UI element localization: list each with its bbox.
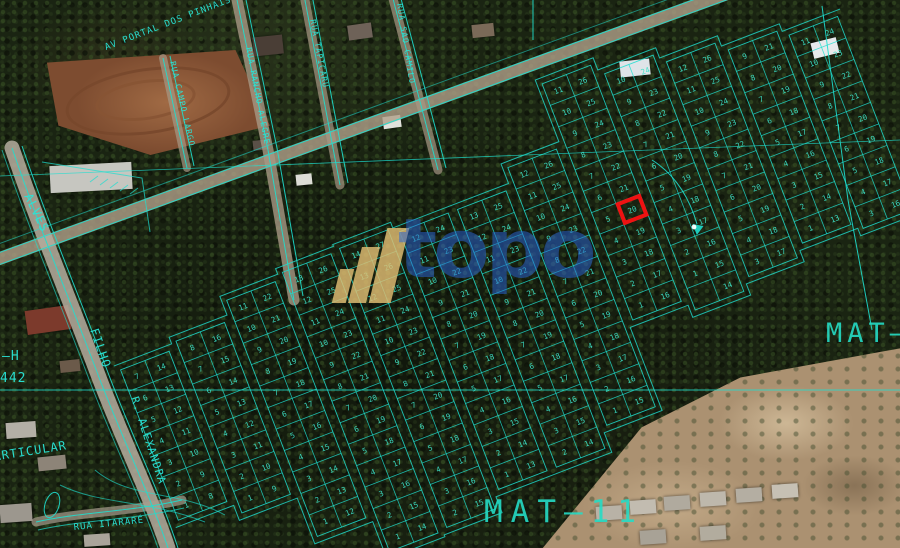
lot-number: 15: [714, 258, 726, 270]
lot-number: 16: [567, 394, 579, 406]
lot-number: 24: [399, 304, 411, 316]
lot-number: 17: [558, 373, 570, 385]
lot-number: 10: [246, 322, 258, 334]
lot-number: 22: [451, 266, 463, 278]
lot-number: 5: [737, 214, 744, 224]
lot-number: 18: [788, 106, 800, 118]
lot-number: 9: [328, 360, 335, 370]
lot-number: 16: [625, 374, 637, 386]
lot-number: 2: [386, 510, 393, 520]
lot-number: 2: [799, 202, 806, 212]
lot-number: 4: [222, 428, 230, 438]
lot-number: 23: [726, 118, 738, 130]
lot-number: 4: [586, 341, 594, 351]
lot-number: 4: [782, 159, 790, 169]
lot-number: 5: [213, 407, 220, 417]
lot-number: 18: [767, 225, 779, 237]
lot-number: 15: [509, 416, 521, 428]
lot-number: 20: [592, 288, 604, 300]
lot-number: 19: [865, 134, 877, 146]
lot-number: 24: [593, 118, 605, 130]
lot-number: 11: [527, 190, 539, 202]
lot-number: 3: [595, 362, 602, 372]
lot-number: 6: [766, 116, 774, 126]
lot-number: 22: [610, 161, 622, 173]
lot-number: 20: [278, 334, 290, 346]
lot-number: 25: [551, 181, 563, 193]
lot-number: 5: [659, 183, 666, 193]
lot-number: 16: [311, 420, 323, 432]
lot-number: 18: [449, 433, 461, 445]
lot-number: 22: [262, 292, 274, 304]
lot-number: 13: [829, 213, 841, 225]
lot-number: 10: [535, 211, 547, 223]
lot-number: 26: [383, 261, 395, 273]
lot-number: 4: [158, 436, 166, 446]
lot-number: 9: [503, 297, 510, 307]
lot-number: 9: [626, 97, 633, 107]
cad-overlay: 7146135124113102918816715614513412311210…: [0, 0, 900, 548]
lot-number: 9: [199, 469, 206, 479]
lot-number: 9: [741, 51, 748, 61]
lot-number: 25: [326, 285, 338, 297]
lot-number: 17: [882, 177, 894, 189]
lot-number: 16: [890, 198, 900, 210]
lot-number: 21: [743, 161, 755, 173]
lot-number: 19: [542, 330, 554, 342]
lot-number: 9: [704, 128, 711, 138]
lot-number: 1: [246, 493, 253, 503]
lot-number: 23: [567, 224, 579, 236]
lot-number: 17: [617, 352, 629, 364]
lot-number: 11: [685, 84, 697, 96]
lot-number: 11: [252, 440, 264, 452]
lot-number: 24: [434, 223, 446, 235]
lot-number: 23: [509, 244, 521, 256]
lot-number: 22: [576, 245, 588, 257]
lot-number: 12: [476, 232, 488, 244]
lot-number: 1: [322, 517, 329, 527]
lot-number: 24: [639, 65, 651, 77]
lot-number: 20: [432, 390, 444, 402]
lot-number: 6: [596, 193, 604, 203]
lot-number: 4: [544, 404, 552, 414]
lot-number: 3: [230, 450, 237, 460]
lot-number: 13: [164, 383, 176, 395]
lot-number: 10: [427, 275, 439, 287]
lot-number: 9: [571, 128, 578, 138]
lot-number: 6: [353, 424, 361, 434]
lot-number: 2: [175, 479, 182, 489]
lot-number: 17: [796, 127, 808, 139]
lot-number: 6: [729, 192, 737, 202]
lot-number: 3: [753, 257, 760, 267]
lot-number: 11: [180, 426, 192, 438]
lot-number: 3: [790, 180, 797, 190]
lot-number: 15: [633, 395, 645, 407]
lot-number: 10: [260, 461, 272, 473]
lot-number: 10: [808, 57, 820, 69]
lot-number: 18: [609, 331, 621, 343]
lot-number: 10: [383, 335, 395, 347]
lot-number: 21: [424, 369, 436, 381]
lot-number: 22: [350, 350, 362, 362]
lot-number: 7: [520, 340, 527, 350]
lot-number: 3: [305, 474, 312, 484]
lot-number: 3: [166, 457, 173, 467]
lot-number: 17: [303, 399, 315, 411]
lot-number: 21: [459, 288, 471, 300]
lot-number: 26: [317, 264, 329, 276]
lot-number: 16: [211, 332, 223, 344]
lot-number: 9: [818, 80, 825, 90]
lot-number: 4: [297, 452, 305, 462]
lot-number: 8: [207, 491, 215, 501]
lot-number: 6: [843, 144, 851, 154]
lot-number: 5: [851, 165, 858, 175]
lot-number: 21: [525, 287, 537, 299]
lot-number: 1: [637, 300, 644, 310]
lot-number: 19: [681, 173, 693, 185]
lot-number: 14: [517, 438, 529, 450]
lot-number: 20: [672, 151, 684, 163]
lot-number: 25: [710, 75, 722, 87]
lot-number: 18: [484, 352, 496, 364]
lot-number: 1: [503, 469, 510, 479]
lot-number: 7: [757, 94, 764, 104]
lot-number: 24: [501, 222, 513, 234]
lot-number: 14: [327, 463, 339, 475]
lot-number: 14: [722, 280, 734, 292]
lot-number: 5: [578, 320, 585, 330]
lot-number: 4: [745, 235, 753, 245]
lot-number: 27: [374, 240, 386, 252]
lot-number: 5: [774, 137, 781, 147]
lot-number: 6: [418, 421, 426, 431]
lot-number: 3: [868, 208, 875, 218]
mat-11-label: MAT—11: [484, 494, 644, 530]
lot-number: 20: [367, 392, 379, 404]
lot-number: 5: [150, 414, 157, 424]
lot-number: 23: [443, 245, 455, 257]
lot-number: 6: [650, 161, 658, 171]
lot-number: 5: [289, 431, 296, 441]
lot-number: 8: [402, 379, 410, 389]
lot-number: 17: [651, 269, 663, 281]
lot-number: 19: [635, 226, 647, 238]
lot-number: 12: [244, 418, 256, 430]
lot-number: 3: [486, 427, 493, 437]
lot-number: 19: [759, 204, 771, 216]
lot-number: 10: [615, 74, 627, 86]
lot-number: 16: [659, 290, 671, 302]
lot-number: 4: [859, 187, 867, 197]
lot-number: 18: [689, 194, 701, 206]
lot-number: 20: [467, 309, 479, 321]
lot-number: 17: [492, 373, 504, 385]
lot-number: 7: [454, 341, 461, 351]
lot-number: 17: [457, 454, 469, 466]
lot-number: 5: [361, 446, 368, 456]
lot-number: 7: [272, 388, 279, 398]
lot-number: 24: [718, 96, 730, 108]
lot-number: 9: [545, 234, 552, 244]
lot-number: 11: [418, 254, 430, 266]
lot-number: 26: [577, 75, 589, 87]
lot-number: 16: [400, 478, 412, 490]
lot-number: 7: [197, 364, 204, 374]
lot-number: 22: [517, 265, 529, 277]
lot-number: 23: [407, 326, 419, 338]
lot-number: 2: [238, 472, 245, 482]
lot-number: 17: [391, 457, 403, 469]
lot-number: 12: [172, 404, 184, 416]
lot-number: 12: [344, 506, 356, 518]
lot-number: 8: [712, 149, 720, 159]
lot-number: 10: [694, 105, 706, 117]
lot-number: 25: [585, 97, 597, 109]
lot-number: 14: [583, 437, 595, 449]
lot-number: 9: [271, 484, 278, 494]
lot-number: 21: [618, 183, 630, 195]
lot-number: 4: [612, 236, 620, 246]
lot-number: 21: [270, 313, 282, 325]
lot-number: 11: [485, 253, 497, 265]
lot-number: 2: [451, 508, 458, 518]
lot-number: 2: [561, 447, 568, 457]
lot-number: 14: [227, 375, 239, 387]
lot-number: 22: [656, 108, 668, 120]
street-label: ALVES: [21, 191, 52, 234]
lot-number: 13: [236, 397, 248, 409]
lot-number: 7: [720, 171, 727, 181]
lot-number: 16: [465, 476, 477, 488]
lot-number: 8: [580, 150, 588, 160]
lot-number: 1: [807, 223, 814, 233]
lot-number: 3: [675, 226, 682, 236]
lot-number: 13: [525, 459, 537, 471]
lot-number: 15: [319, 442, 331, 454]
lot-number: 20: [626, 204, 638, 216]
lot-number: 1: [394, 532, 401, 542]
lot-number: 12: [518, 168, 530, 180]
lot-number: 7: [835, 123, 842, 133]
lot-number: 16: [500, 395, 512, 407]
street-label: AV PORTAL DOS PINHAIS: [103, 0, 232, 53]
lot-number: 12: [301, 295, 313, 307]
lot-number: 13: [358, 271, 370, 283]
lot-number: 8: [554, 255, 562, 265]
lot-number: 5: [470, 384, 477, 394]
lot-number: 7: [410, 400, 417, 410]
lot-number: 10: [188, 447, 200, 459]
lot-number: 13: [293, 273, 305, 285]
lot-number: 21: [584, 266, 596, 278]
lot-number: 12: [367, 292, 379, 304]
lot-number: 11: [309, 316, 321, 328]
lot-number: 24: [559, 202, 571, 214]
lot-number: 21: [849, 91, 861, 103]
lot-number: 14: [416, 521, 428, 533]
lot-number: 13: [336, 485, 348, 497]
lot-number: 21: [358, 371, 370, 383]
lot-number: 7: [588, 171, 595, 181]
lot-number: 22: [416, 347, 428, 359]
lot-number: 14: [821, 191, 833, 203]
lot-number: 2: [314, 495, 321, 505]
lot-number: 12: [677, 63, 689, 75]
lot-number: 8: [264, 366, 272, 376]
lot-number: 4: [478, 405, 486, 415]
lot-number: 5: [426, 443, 433, 453]
lot-number: 11: [800, 36, 812, 48]
lot-number: 15: [408, 500, 420, 512]
lot-number: 9: [437, 298, 444, 308]
lot-number: 21: [664, 130, 676, 142]
lot-number: 18: [873, 155, 885, 167]
lot-number: 22: [734, 139, 746, 151]
lot-number: 5: [536, 383, 543, 393]
lot-number: 11: [553, 85, 565, 97]
street-label: —H: [2, 349, 20, 364]
lot-number: 2: [629, 279, 636, 289]
lot-number: 24: [824, 26, 836, 38]
lot-number: 6: [205, 385, 213, 395]
lot-number: 22: [840, 69, 852, 81]
street-label: PARTICULAR: [0, 438, 68, 465]
lot-number: 17: [697, 215, 709, 227]
lot-number: 7: [562, 277, 569, 287]
lot-number: 19: [476, 330, 488, 342]
lot-number: 8: [189, 342, 197, 352]
lot-number: 7: [133, 371, 140, 381]
lot-number: 12: [410, 232, 422, 244]
lot-number: 20: [857, 112, 869, 124]
lot-number: 4: [667, 204, 675, 214]
lot-number: 19: [600, 309, 612, 321]
lot-number: 11: [375, 313, 387, 325]
lot-number: 15: [575, 416, 587, 428]
lot-number: 10: [318, 337, 330, 349]
lot-number: 20: [771, 63, 783, 75]
lot-number: 23: [342, 328, 354, 340]
lot-number: 4: [369, 467, 377, 477]
lot-number: 9: [393, 357, 400, 367]
lot-number: 1: [692, 269, 699, 279]
lot-number: 20: [534, 308, 546, 320]
lot-number: 1: [611, 405, 618, 415]
lot-number: 8: [749, 73, 757, 83]
map-canvas[interactable]: 7146135124113102918816715614513412311210…: [0, 0, 900, 548]
lot-number: 5: [604, 214, 611, 224]
lot-number: 7: [345, 403, 352, 413]
lot-number: 2: [603, 384, 610, 394]
lot-number: 11: [237, 301, 249, 313]
lot-number: 19: [780, 84, 792, 96]
cad-linework: [0, 0, 900, 548]
lot-number: 6: [528, 361, 536, 371]
lot-number: 13: [468, 210, 480, 222]
lot-number: 3: [621, 257, 628, 267]
lot-number: 4: [435, 464, 443, 474]
lot-number: 26: [701, 53, 713, 65]
lot-number: 18: [550, 351, 562, 363]
lot-number: 18: [643, 247, 655, 259]
lot-number: 15: [813, 170, 825, 182]
mat-right-label: MAT—: [826, 318, 900, 349]
lot-number: 25: [492, 201, 504, 213]
lot-number: 18: [383, 435, 395, 447]
lot-number: 2: [683, 247, 690, 257]
lot-number: 7: [642, 140, 649, 150]
lot-number: 26: [543, 159, 555, 171]
lot-number: 14: [155, 361, 167, 373]
lot-number: 3: [378, 489, 385, 499]
lot-number: 21: [763, 41, 775, 53]
lot-number: 19: [375, 414, 387, 426]
lot-number: 15: [219, 354, 231, 366]
lot-number: 23: [602, 140, 614, 152]
lot-number: 25: [391, 283, 403, 295]
lot-number: 8: [634, 118, 642, 128]
lot-number: 10: [561, 106, 573, 118]
lot-number: 9: [256, 345, 263, 355]
lot-number: 2: [495, 448, 502, 458]
lot-number: 16: [804, 148, 816, 160]
lot-number: 8: [826, 101, 834, 111]
lot-number: 16: [705, 237, 717, 249]
lot-number: 6: [281, 409, 289, 419]
lot-number: 24: [334, 307, 346, 319]
lot-number: 3: [553, 426, 560, 436]
lot-number: 23: [832, 48, 844, 60]
lot-number: 10: [493, 274, 505, 286]
lot-number: 6: [462, 362, 470, 372]
lot-number: 8: [511, 318, 519, 328]
lot-number: 23: [648, 87, 660, 99]
lot-number: 20: [751, 182, 763, 194]
lot-number: 8: [445, 319, 453, 329]
street-label: RUA RANCHO ALEGRE: [244, 47, 272, 146]
lot-number: 17: [775, 246, 787, 258]
lot-number: 18: [295, 377, 307, 389]
street-label: 442: [0, 371, 26, 386]
lot-number: 6: [570, 298, 578, 308]
lot-number: 3: [443, 486, 450, 496]
lot-number: 19: [286, 356, 298, 368]
lot-number: 19: [440, 412, 452, 424]
lot-number: 14: [350, 249, 362, 261]
